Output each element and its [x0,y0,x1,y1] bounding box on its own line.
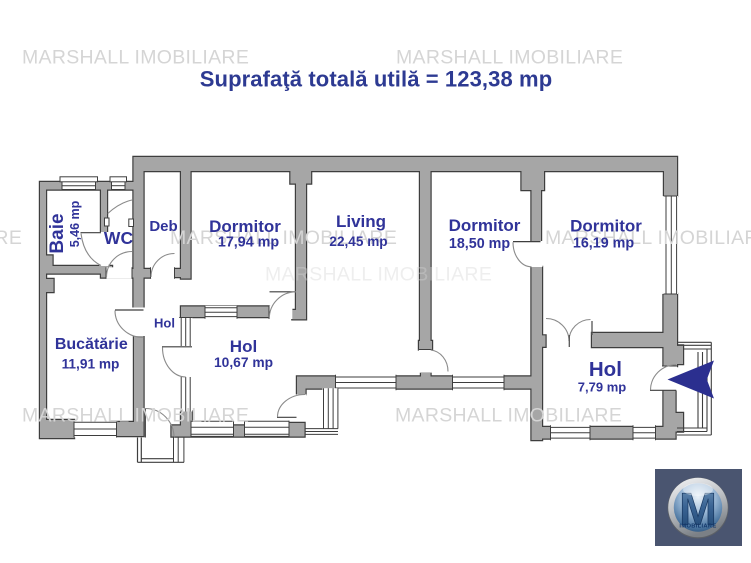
svg-text:11,91 mp: 11,91 mp [62,356,120,371]
svg-text:10,67 mp: 10,67 mp [214,355,273,370]
svg-text:Baie: Baie [47,213,68,253]
svg-text:Living: Living [336,212,386,231]
svg-text:5,46 mp: 5,46 mp [68,200,82,247]
svg-text:IMOBILIARE: IMOBILIARE [679,524,716,530]
svg-text:Suprafaţă totală utilă = 123,3: Suprafaţă totală utilă = 123,38 mp [200,67,552,92]
svg-text:22,45 mp: 22,45 mp [329,234,387,249]
svg-text:16,19 mp: 16,19 mp [573,236,634,252]
svg-text:Dormitor: Dormitor [209,217,281,236]
svg-text:17,94 mp: 17,94 mp [218,235,279,251]
svg-text:MARSHALL IMOBILIARE: MARSHALL IMOBILIARE [22,47,249,69]
svg-text:Hol: Hol [230,337,257,356]
svg-text:Hol: Hol [154,316,175,331]
svg-text:Deb: Deb [149,218,177,235]
svg-text:MARSHALL IMOBILIARE: MARSHALL IMOBILIARE [22,405,249,427]
svg-text:Dormitor: Dormitor [449,216,521,235]
svg-text:MARSHALL IMOBILIARE: MARSHALL IMOBILIARE [265,264,492,286]
svg-text:Dormitor: Dormitor [570,217,642,236]
svg-text:MARSHALL IMOBILIARE: MARSHALL IMOBILIARE [396,47,623,69]
svg-text:Hol: Hol [589,358,622,381]
svg-text:MARSHALL IMOBILIARE: MARSHALL IMOBILIARE [395,405,622,427]
svg-text:Bucătărie: Bucătărie [55,336,128,353]
svg-text:18,50 mp: 18,50 mp [449,236,510,252]
svg-text:MARSHALL IMOBILIARE: MARSHALL IMOBILIARE [0,227,22,249]
svg-text:WC: WC [104,228,134,248]
svg-text:7,79 mp: 7,79 mp [578,380,626,395]
